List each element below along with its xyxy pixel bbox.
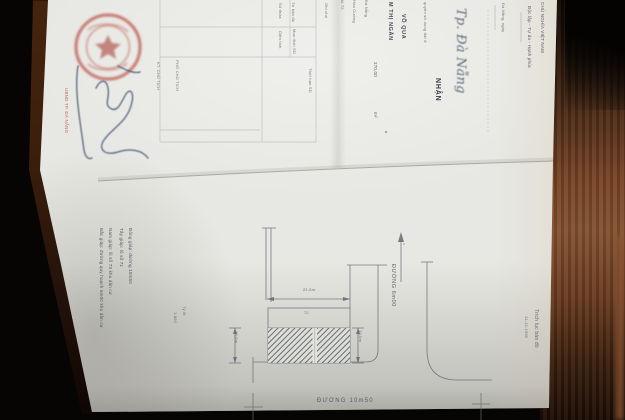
horizontal-crease: [98, 159, 553, 181]
paper-specks: [385, 131, 405, 245]
official-round-seal: [76, 15, 140, 79]
handwritten-place: Tp. Đà Nẵng: [453, 8, 468, 94]
boundary-note-4: Bắc giáp: đường quy hoạch 6m00 khu dân c…: [99, 228, 104, 328]
boundary-note-3: Nam giáp: lô số 73 khu dân cư: [108, 228, 113, 295]
certificate-intro-line: quyền sử dụng đất ở: [423, 2, 428, 43]
boundary-note-2: Tây giáp: lô số 71: [119, 228, 124, 267]
signer-title-1: KT. CHỦ TỊCH: [156, 62, 161, 90]
area-unit: m²: [373, 112, 378, 118]
dimension-left-label: 13,0m: [234, 331, 239, 343]
motto-line-1: CHỦ NGHĨA VIỆT NAM: [540, 2, 545, 53]
boundary-note-1: Đông giáp: đường 10m50: [128, 228, 133, 284]
dimension-right-label: 13,0m: [358, 330, 363, 342]
photo-of-land-certificate: CHỦ NGHĨA VIỆT NAM Độc lập - Tự do - Hạn…: [0, 0, 625, 420]
area-value: 270,00: [373, 62, 378, 77]
map-date: 11-12-1990: [524, 316, 529, 338]
table-label-3: Diện tích: [278, 31, 283, 49]
table-label-2: Tờ bản đồ: [291, 2, 296, 22]
table-label-5: Thời hạn SD: [308, 68, 313, 93]
signer-title-2: PHÓ CHỦ TỊCH: [175, 60, 180, 91]
cadastral-sketch-lines: [229, 228, 492, 420]
table-label-6: Ghi chú: [324, 3, 329, 18]
address-fragment-3: Đà Nẵng: [364, 0, 369, 17]
address-fragment-2: Hòa Cường: [352, 0, 357, 23]
map-scale-value: 1:500: [173, 312, 178, 323]
lot-number-label: 72: [304, 310, 309, 315]
address-fragment-1: lô 72: [340, 0, 345, 10]
table-label-1: Số thửa: [278, 3, 283, 19]
certificate-heading-word: NHẬN: [434, 78, 441, 101]
table-label-4: Mục đích SD: [292, 29, 297, 54]
seal-red-note: UBND TP. ĐÀ NẴNG: [64, 88, 69, 133]
date-line: Đà Nẵng, ngày: [501, 3, 506, 32]
map-title: Trích lục bản đồ: [533, 309, 539, 348]
owner-name-2: M THỊ NGÂN: [387, 2, 393, 41]
map-scale-label: Tỷ lệ: [182, 306, 187, 316]
road-bottom-label: ĐƯỜNG 10m50: [317, 398, 374, 404]
motto-line-2: Độc lập - Tự do - Hạnh phúc: [527, 6, 532, 68]
road-vertical-label: ĐƯỜNG 6m00: [390, 264, 396, 307]
dimension-top-label: 21,0m: [303, 287, 315, 292]
hatched-plot-area: [268, 328, 350, 363]
owner-name-1: VÕ QUA: [400, 14, 406, 39]
